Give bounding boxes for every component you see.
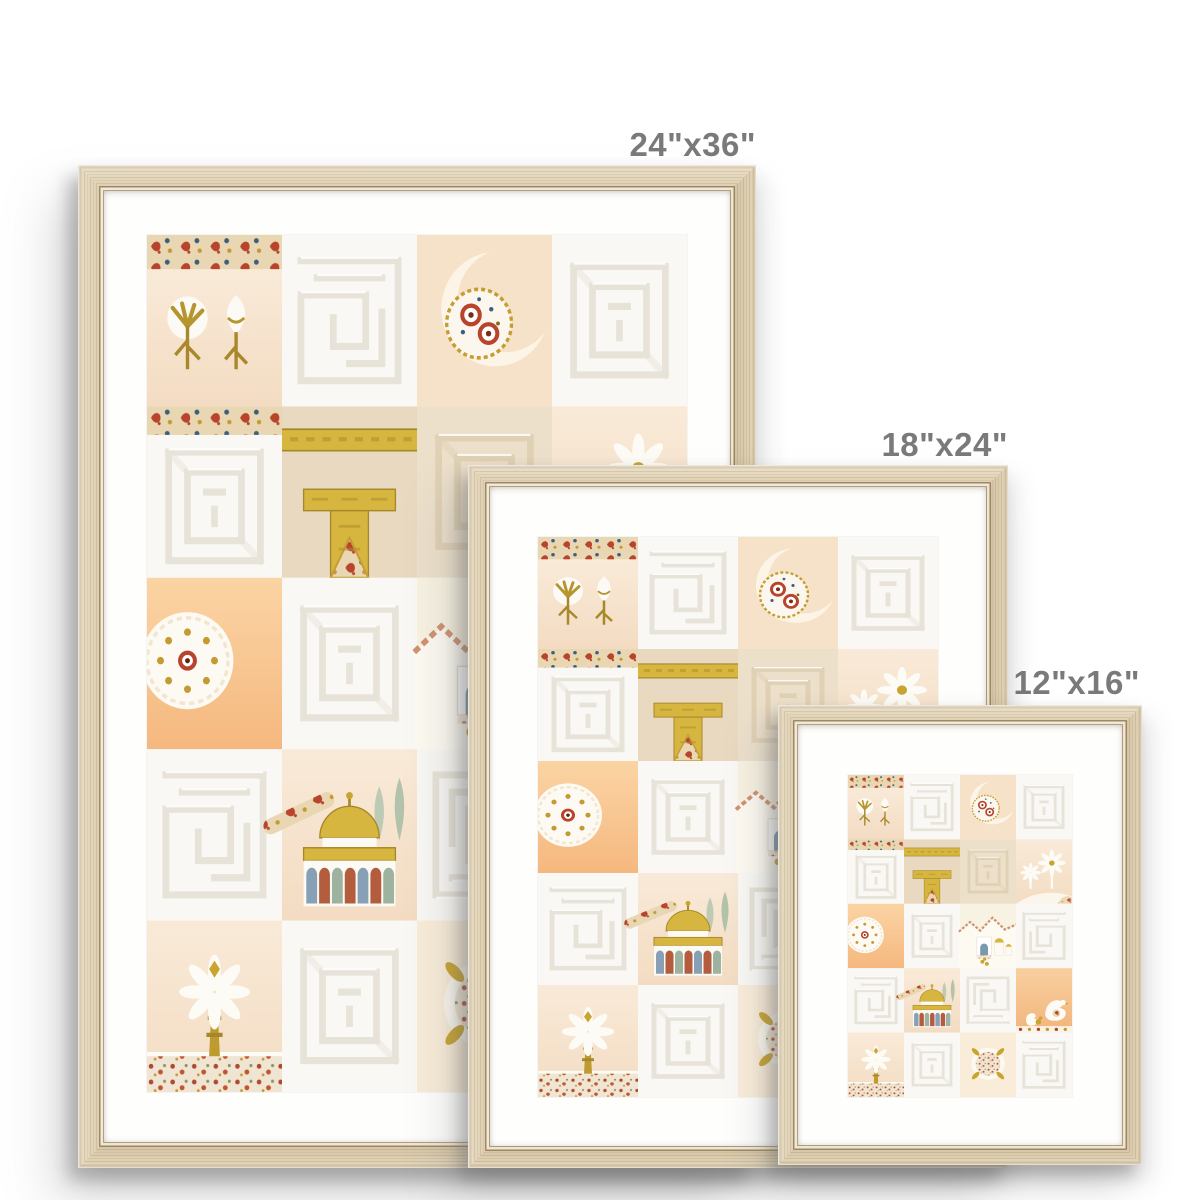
- frame-edge-left: [78, 165, 104, 1168]
- frame-edge-right: [1122, 705, 1142, 1165]
- frame-edge-top: [468, 465, 1008, 487]
- product-mockup: 24"x36" 18"x24" 12"x16": [0, 0, 1200, 1200]
- size-label-24x36: 24"x36": [78, 128, 756, 161]
- frame-edge-left: [778, 705, 798, 1165]
- artwork-image: [848, 775, 1072, 1097]
- frame-edge-left: [468, 465, 490, 1168]
- framed-print-12x16: [778, 705, 1142, 1165]
- frame-edge-top: [78, 165, 756, 191]
- mat-board: [798, 725, 1122, 1145]
- frame-edge-top: [778, 705, 1142, 725]
- frame-edge-bottom: [778, 1145, 1142, 1165]
